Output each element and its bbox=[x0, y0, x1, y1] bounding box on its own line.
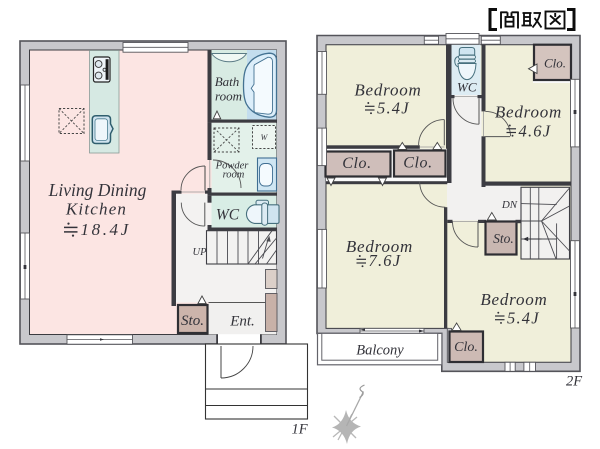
svg-text:Bath: Bath bbox=[215, 74, 240, 89]
svg-text:Bedroom: Bedroom bbox=[480, 290, 547, 309]
svg-text:5.4J: 5.4J bbox=[377, 99, 410, 118]
svg-text:WC: WC bbox=[457, 80, 477, 95]
svg-text:Sto.: Sto. bbox=[493, 231, 514, 246]
svg-text:Living Dining: Living Dining bbox=[48, 180, 147, 200]
svg-text:Kitchen: Kitchen bbox=[65, 200, 127, 219]
svg-text:5.4J: 5.4J bbox=[507, 309, 540, 328]
svg-text:UP: UP bbox=[193, 247, 208, 258]
svg-text:18.4J: 18.4J bbox=[81, 220, 131, 239]
svg-text:Ent.: Ent. bbox=[229, 314, 255, 330]
svg-text:room: room bbox=[223, 170, 245, 181]
svg-text:7.6J: 7.6J bbox=[369, 251, 402, 270]
svg-text:DN: DN bbox=[501, 199, 518, 211]
svg-text:Bedroom: Bedroom bbox=[495, 103, 562, 122]
svg-text:2F: 2F bbox=[566, 374, 582, 390]
svg-text:WC: WC bbox=[216, 207, 240, 224]
svg-text:1F: 1F bbox=[291, 422, 307, 438]
svg-text:Clo.: Clo. bbox=[342, 155, 372, 172]
svg-text:room: room bbox=[215, 89, 242, 104]
svg-text:4.6J: 4.6J bbox=[519, 122, 552, 141]
svg-text:Clo.: Clo. bbox=[454, 340, 478, 355]
svg-text:Bedroom: Bedroom bbox=[354, 81, 421, 100]
svg-text:Sto.: Sto. bbox=[181, 313, 204, 329]
svg-text:Clo.: Clo. bbox=[544, 56, 566, 71]
svg-text:Clo.: Clo. bbox=[403, 155, 433, 172]
svg-text:Balcony: Balcony bbox=[356, 343, 404, 359]
